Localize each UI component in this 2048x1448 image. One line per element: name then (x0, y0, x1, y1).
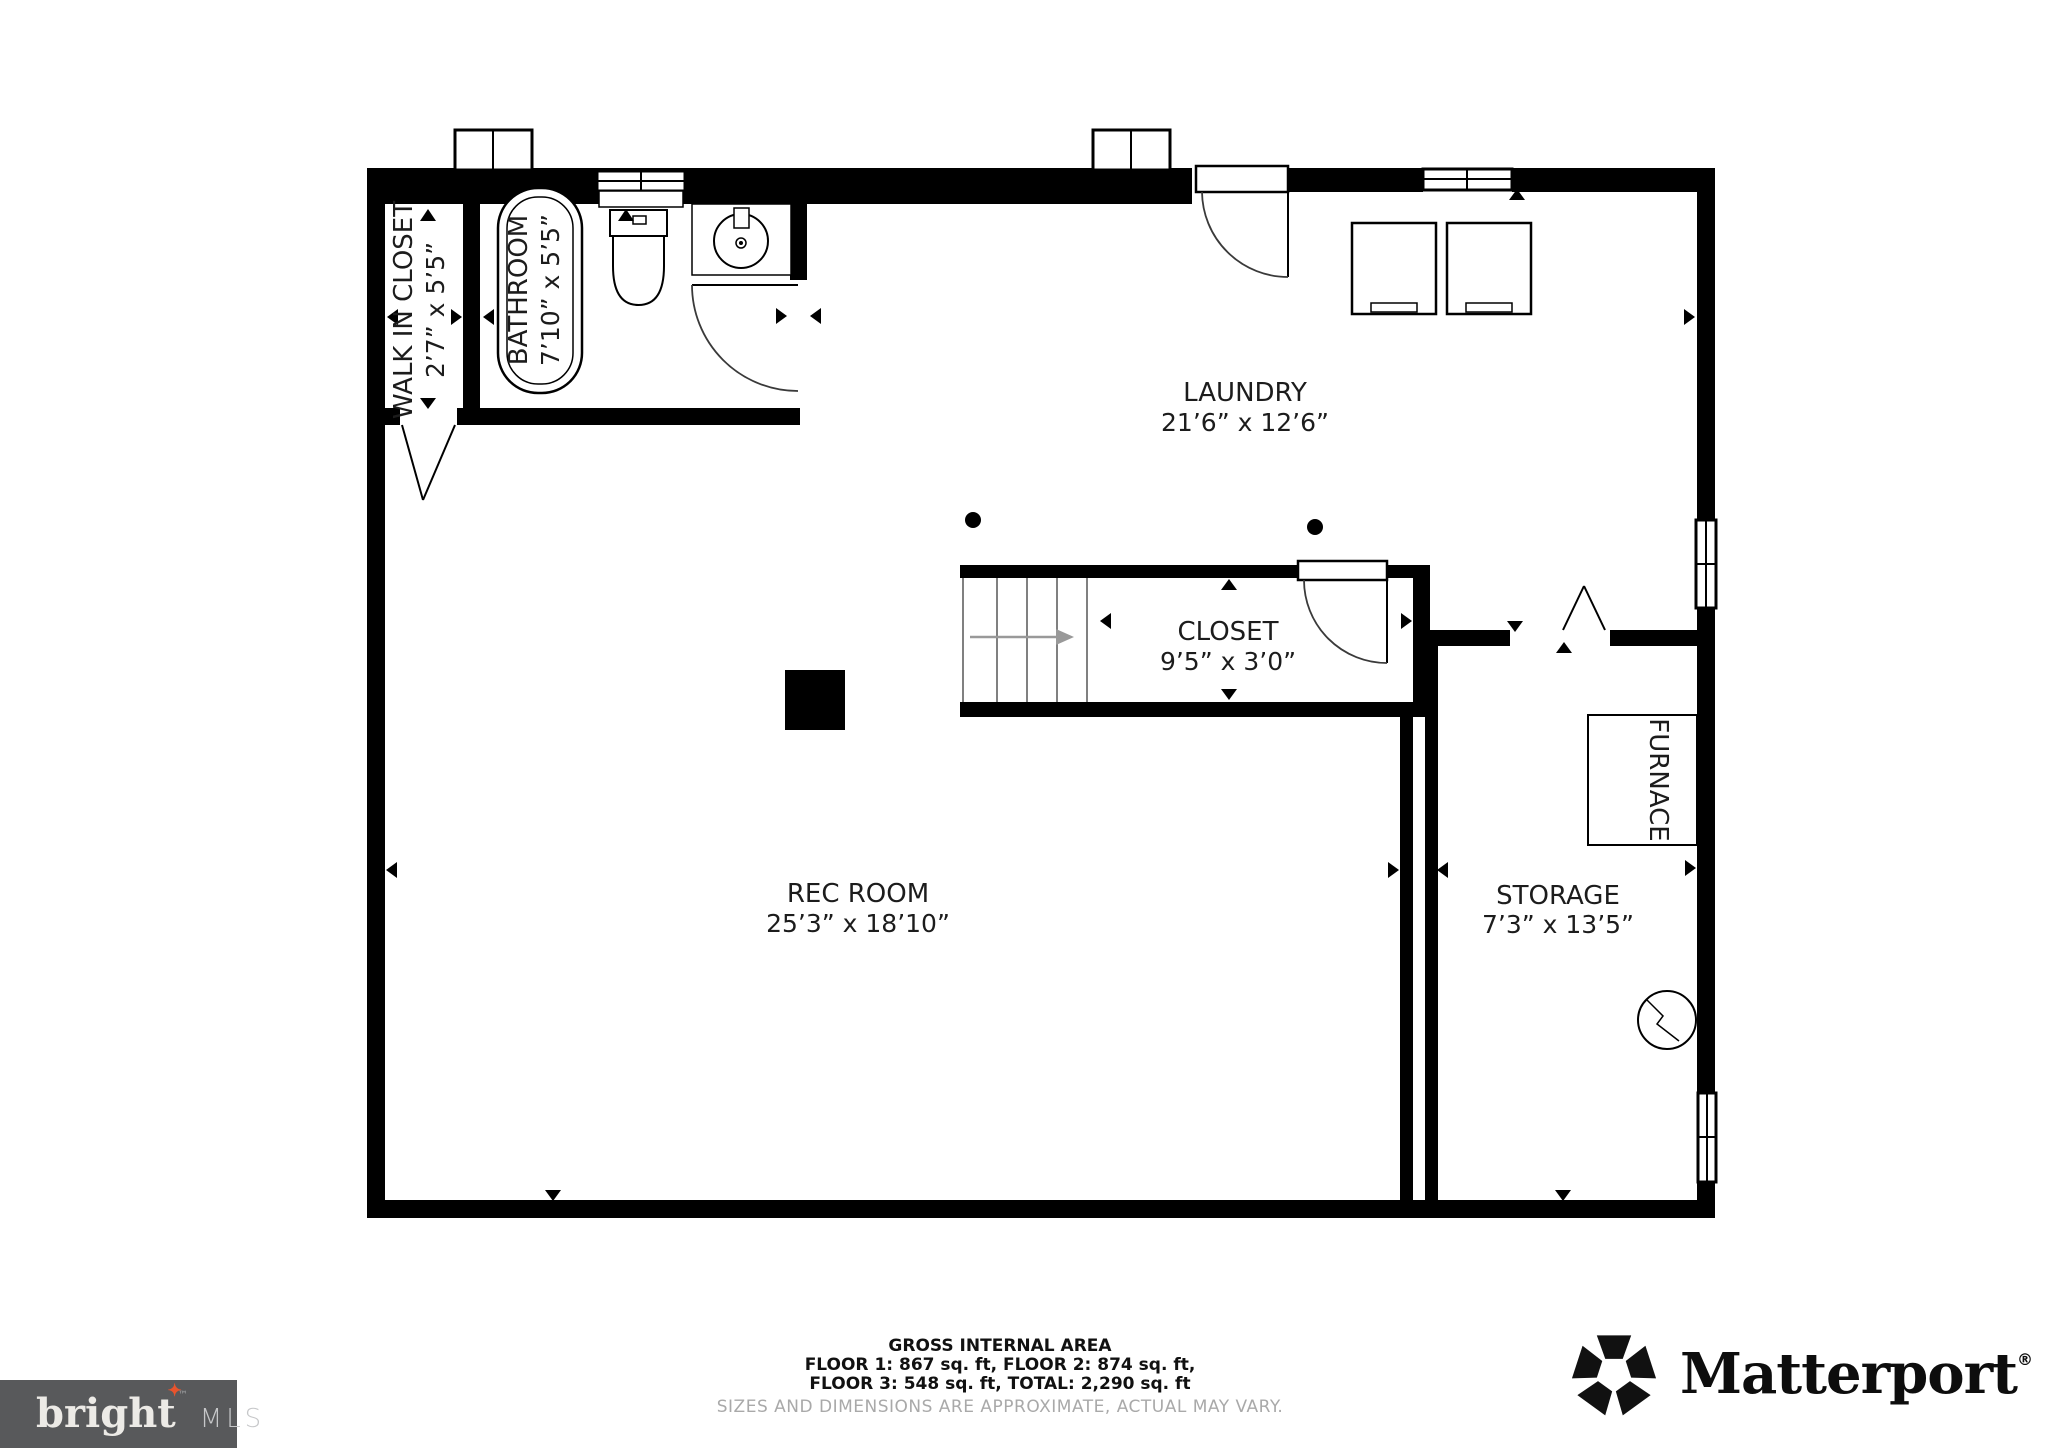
storage-door-icon (1563, 586, 1605, 630)
walk-in-closet-dims: 2’7” x 5’5” (421, 242, 450, 378)
toilet-icon (610, 210, 667, 305)
washer-icon (1352, 223, 1436, 314)
water-heater-icon (1638, 991, 1696, 1049)
closet-dims: 9’5” x 3’0” (1160, 647, 1296, 676)
rec-room-dims: 25’3” x 18’10” (766, 909, 950, 938)
footer-areas-line1: FLOOR 1: 867 sq. ft, FLOOR 2: 874 sq. ft… (805, 1355, 1196, 1375)
right-wall-window-upper-icon (1696, 520, 1716, 608)
laundry-door-icon (1196, 166, 1288, 277)
footer-areas-line2: FLOOR 3: 548 sq. ft, TOTAL: 2,290 sq. ft (809, 1374, 1190, 1394)
washer-dryer-icons (1352, 223, 1531, 314)
closet-door-icon (1298, 561, 1387, 663)
storage-dims: 7’3” x 13’5” (1482, 910, 1634, 939)
bathroom-window-icon (597, 171, 685, 207)
right-wall-window-lower-icon (1698, 1093, 1716, 1182)
laundry-label: LAUNDRY (1183, 378, 1307, 408)
bright-wordmark: bright ✦ (36, 1394, 176, 1434)
bathroom-dims: 7’10” x 5’5” (536, 214, 565, 366)
sink-icon (692, 204, 791, 275)
bright-mls-logo: bright ✦ ™ MLS (0, 1380, 237, 1448)
matterport-shutter-icon (1568, 1328, 1660, 1420)
laundry-window-icon (1423, 169, 1512, 190)
footer-disclaimer: SIZES AND DIMENSIONS ARE APPROXIMATE, AC… (717, 1397, 1283, 1417)
floorplan-drawing: WALK IN CLOSET 2’7” x 5’5” BATHROOM 7’10… (0, 0, 2048, 1448)
closet-label: CLOSET (1178, 617, 1279, 647)
storage-label: STORAGE (1496, 881, 1620, 911)
bathroom-label: BATHROOM (504, 215, 534, 365)
laundry-dims: 21’6” x 12’6” (1161, 408, 1329, 437)
furnace-box-icon (1588, 715, 1697, 845)
structure-post-dots (965, 512, 1323, 535)
staircase-icon (963, 578, 1087, 702)
registered-symbol: ® (2017, 1350, 2032, 1369)
furnace-label: FURNACE (1643, 718, 1673, 841)
stairs-direction-arrow-icon (970, 629, 1074, 645)
window-well-right-icon (1093, 130, 1170, 170)
gross-internal-area-block: GROSS INTERNAL AREA FLOOR 1: 867 sq. ft,… (717, 1336, 1283, 1417)
walk-in-closet-label: WALK IN CLOSET (389, 201, 419, 419)
matterport-logo: Matterport® (1568, 1328, 2032, 1420)
footer-title: GROSS INTERNAL AREA (888, 1336, 1112, 1356)
bathroom-door-icon (692, 285, 798, 391)
walk-in-closet-door-icon (402, 425, 455, 500)
floorplan-page: WALK IN CLOSET 2’7” x 5’5” BATHROOM 7’10… (0, 0, 2048, 1448)
rec-room-label: REC ROOM (787, 879, 929, 909)
window-well-left-icon (455, 130, 532, 170)
matterport-wordmark: Matterport® (1680, 1346, 2032, 1402)
star-icon: ✦ (168, 1383, 182, 1400)
support-column-icon (785, 670, 845, 730)
mls-wordmark: MLS (200, 1404, 265, 1434)
dryer-icon (1447, 223, 1531, 314)
